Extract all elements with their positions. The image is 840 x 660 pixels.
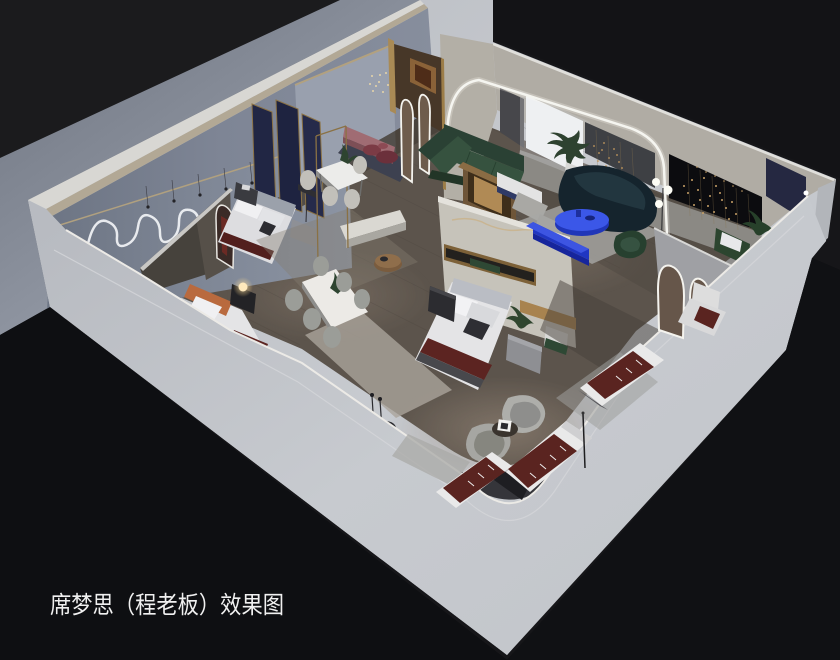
svg-text:席梦思（程老板）效果图: 席梦思（程老板）效果图 <box>50 592 284 619</box>
